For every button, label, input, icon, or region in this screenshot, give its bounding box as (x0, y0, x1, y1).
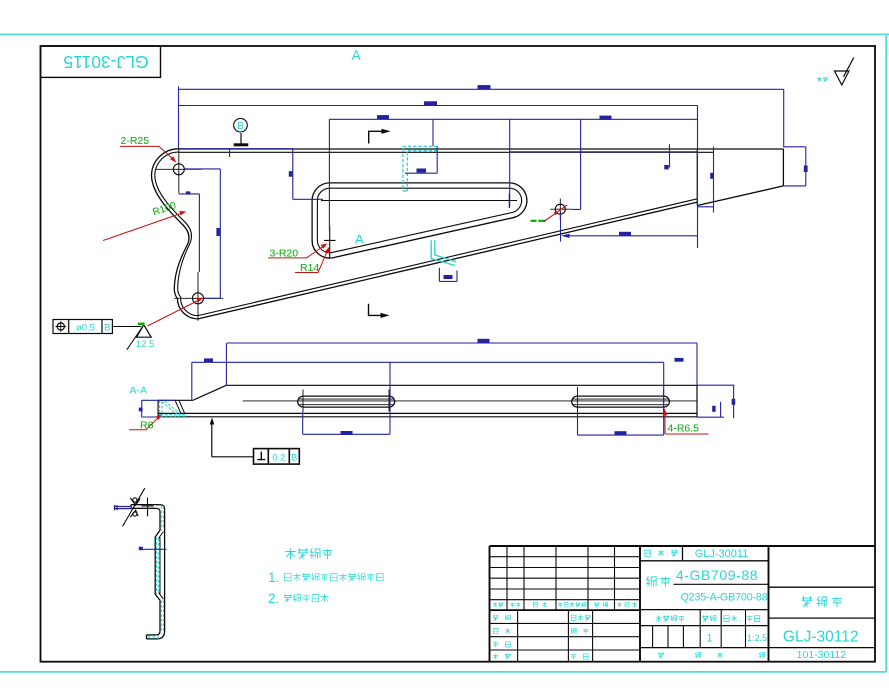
svg-text:12.5: 12.5 (136, 339, 155, 350)
svg-text:1.: 1. (268, 570, 279, 585)
svg-text:Q235-A-GB700-88: Q235-A-GB700-88 (680, 592, 767, 604)
svg-text:4-GB709-88: 4-GB709-88 (676, 567, 758, 583)
svg-text:B: B (104, 322, 110, 333)
svg-text:0.2: 0.2 (272, 452, 285, 463)
svg-text:1:2.5: 1:2.5 (747, 633, 767, 643)
svg-text:A: A (355, 232, 364, 247)
svg-text:1: 1 (706, 633, 712, 645)
svg-text:B: B (237, 121, 244, 132)
svg-text:A-A: A-A (130, 385, 148, 397)
svg-text:4-R6.5: 4-R6.5 (668, 423, 700, 435)
svg-text:101-30112: 101-30112 (797, 649, 847, 661)
svg-text:2-R25: 2-R25 (121, 135, 150, 147)
svg-text:GLJ-30011: GLJ-30011 (695, 548, 749, 560)
svg-text:2.: 2. (268, 591, 279, 606)
svg-text:A: A (352, 47, 362, 63)
svg-text:GLJ-30112: GLJ-30112 (783, 628, 859, 645)
svg-text:GLJ-30115: GLJ-30115 (63, 52, 148, 72)
svg-text:B: B (291, 452, 297, 463)
svg-text:ø0.5: ø0.5 (76, 322, 95, 333)
